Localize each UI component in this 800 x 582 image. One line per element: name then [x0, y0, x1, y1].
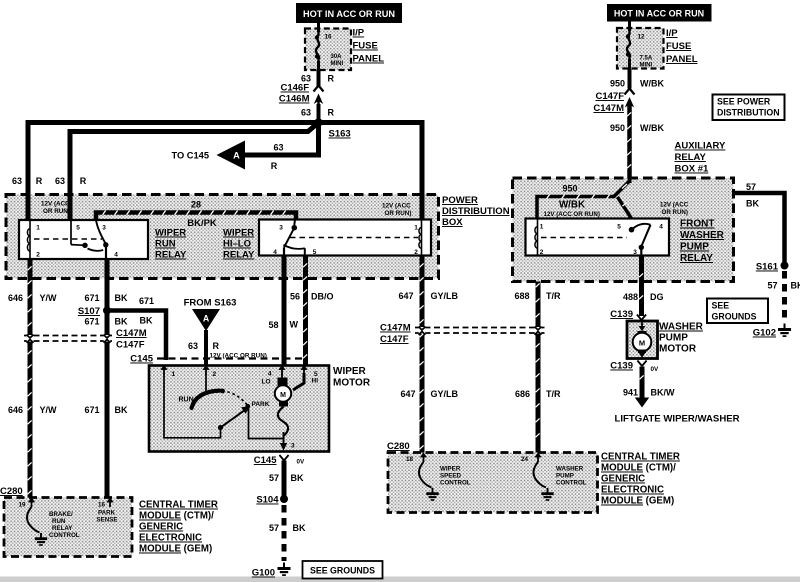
svg-text:OR RUN): OR RUN)	[385, 210, 412, 217]
svg-text:BK: BK	[293, 523, 306, 533]
svg-text:63: 63	[188, 341, 198, 351]
svg-text:2: 2	[36, 252, 40, 259]
svg-text:FUSE: FUSE	[666, 41, 691, 52]
svg-text:DISTRIBUTION: DISTRIBUTION	[442, 206, 510, 217]
svg-text:3: 3	[633, 249, 637, 256]
svg-text:CONTROL: CONTROL	[49, 532, 80, 539]
svg-text:C147M: C147M	[380, 323, 411, 334]
svg-text:PANEL: PANEL	[353, 54, 385, 65]
svg-text:BK/PK: BK/PK	[187, 218, 217, 229]
svg-text:4: 4	[273, 249, 277, 256]
svg-text:BK: BK	[140, 316, 153, 326]
svg-text:688: 688	[514, 291, 529, 301]
svg-text:BK: BK	[115, 293, 128, 303]
svg-text:3: 3	[279, 225, 283, 232]
svg-text:Y/W: Y/W	[40, 293, 58, 303]
svg-text:PANEL: PANEL	[666, 54, 698, 65]
svg-text:MODULE (GEM): MODULE (GEM)	[139, 544, 212, 555]
svg-text:SPEED: SPEED	[440, 473, 462, 480]
svg-text:C280: C280	[0, 486, 23, 497]
svg-text:W: W	[290, 320, 299, 330]
svg-text:FROM S163: FROM S163	[184, 298, 237, 309]
svg-text:RELAY: RELAY	[680, 253, 713, 264]
svg-text:63: 63	[55, 176, 65, 186]
svg-text:MODULE (CTM)/: MODULE (CTM)/	[601, 463, 676, 474]
svg-text:0V: 0V	[651, 366, 660, 373]
svg-text:HI: HI	[312, 378, 319, 385]
svg-text:3: 3	[291, 443, 295, 450]
svg-text:12V (ACC OR RUN): 12V (ACC OR RUN)	[210, 353, 267, 360]
svg-text:LO: LO	[261, 379, 270, 386]
svg-text:1: 1	[172, 371, 176, 378]
svg-text:671: 671	[139, 296, 154, 306]
svg-text:GY/LB: GY/LB	[431, 291, 459, 301]
svg-text:4: 4	[659, 224, 663, 231]
svg-text:G100: G100	[252, 568, 275, 579]
svg-text:MOTOR: MOTOR	[659, 344, 697, 355]
svg-text:671: 671	[84, 293, 99, 303]
svg-text:R: R	[213, 341, 220, 351]
svg-text:950: 950	[610, 79, 625, 89]
svg-text:C145: C145	[254, 455, 277, 466]
svg-text:A: A	[233, 151, 240, 161]
svg-text:FRONT: FRONT	[680, 219, 714, 230]
svg-text:R: R	[271, 161, 278, 171]
svg-text:A: A	[203, 314, 210, 324]
svg-text:5: 5	[617, 224, 621, 231]
svg-text:5: 5	[313, 249, 317, 256]
svg-text:T/R: T/R	[546, 291, 561, 301]
svg-text:12V (ACC: 12V (ACC	[41, 201, 70, 208]
svg-text:RELAY: RELAY	[155, 250, 187, 261]
svg-text:MODULE (GEM): MODULE (GEM)	[601, 496, 674, 507]
svg-text:C139: C139	[610, 361, 633, 372]
svg-text:PARK: PARK	[252, 401, 270, 408]
svg-text:SEE POWER: SEE POWER	[717, 97, 771, 107]
svg-text:16: 16	[98, 502, 106, 509]
svg-text:C280: C280	[387, 441, 410, 452]
svg-text:BK: BK	[115, 317, 128, 327]
svg-text:W/BK: W/BK	[640, 123, 664, 133]
svg-text:R: R	[328, 108, 335, 118]
svg-text:S163: S163	[329, 129, 351, 140]
svg-text:BRAKE/: BRAKE/	[49, 511, 73, 518]
svg-text:HOT IN ACC OR RUN: HOT IN ACC OR RUN	[614, 9, 704, 19]
svg-text:C147M: C147M	[593, 103, 624, 114]
svg-text:BK/W: BK/W	[651, 388, 675, 398]
svg-text:RELAY: RELAY	[675, 152, 707, 163]
svg-text:GENERIC: GENERIC	[139, 522, 183, 533]
svg-text:671: 671	[84, 405, 99, 415]
svg-text:647: 647	[400, 389, 415, 399]
svg-text:C146F: C146F	[280, 83, 309, 94]
svg-text:OR RUN): OR RUN)	[43, 208, 70, 215]
svg-text:57: 57	[767, 281, 777, 291]
svg-text:WASHER: WASHER	[556, 466, 584, 473]
svg-text:T/R: T/R	[546, 389, 561, 399]
svg-text:R: R	[80, 176, 87, 186]
svg-text:M: M	[639, 338, 645, 347]
svg-text:18: 18	[406, 456, 414, 463]
svg-text:488: 488	[623, 292, 638, 302]
svg-text:POWER: POWER	[442, 195, 478, 206]
svg-text:3: 3	[102, 225, 106, 232]
svg-text:R: R	[328, 74, 335, 84]
svg-text:WIPER: WIPER	[440, 466, 461, 473]
svg-text:BOX: BOX	[442, 217, 463, 228]
svg-text:TO C145: TO C145	[171, 151, 209, 161]
svg-text:Y/W: Y/W	[40, 405, 58, 415]
svg-text:PUMP: PUMP	[659, 333, 688, 344]
svg-text:MOTOR: MOTOR	[333, 378, 371, 389]
svg-text:RELAY: RELAY	[52, 525, 73, 532]
svg-text:WASHER: WASHER	[659, 322, 704, 333]
svg-text:CENTRAL TIMER: CENTRAL TIMER	[139, 500, 218, 511]
svg-text:ELECTRONIC: ELECTRONIC	[601, 485, 664, 496]
svg-text:DISTRIBUTION: DISTRIBUTION	[717, 108, 780, 118]
svg-text:WIPER: WIPER	[333, 366, 367, 377]
svg-text:M: M	[280, 392, 286, 399]
svg-text:BK: BK	[115, 405, 128, 415]
svg-text:C147F: C147F	[380, 334, 409, 345]
svg-text:671: 671	[84, 317, 99, 327]
svg-text:30A: 30A	[331, 54, 343, 60]
svg-text:BK: BK	[791, 281, 800, 291]
svg-text:RUN: RUN	[52, 518, 66, 525]
svg-text:1: 1	[414, 225, 418, 232]
svg-text:SENSE: SENSE	[97, 517, 118, 524]
svg-text:12V (ACC: 12V (ACC	[660, 202, 689, 209]
svg-text:MODULE (CTM)/: MODULE (CTM)/	[139, 511, 214, 522]
svg-text:W/BK: W/BK	[559, 200, 585, 211]
svg-text:DB/O: DB/O	[311, 292, 334, 302]
svg-text:12V (ACC: 12V (ACC	[382, 203, 411, 210]
svg-text:58: 58	[268, 320, 278, 330]
svg-text:C145: C145	[130, 354, 153, 365]
svg-text:686: 686	[515, 389, 530, 399]
svg-text:19: 19	[18, 502, 26, 509]
svg-text:0V: 0V	[297, 459, 306, 466]
svg-text:MINI: MINI	[331, 61, 344, 67]
svg-text:LIFTGATE WIPER/WASHER: LIFTGATE WIPER/WASHER	[615, 414, 740, 425]
svg-text:BK: BK	[746, 199, 759, 209]
svg-text:63: 63	[12, 176, 22, 186]
svg-text:R: R	[36, 176, 43, 186]
svg-text:57: 57	[269, 523, 279, 533]
svg-text:2: 2	[414, 249, 418, 256]
svg-text:GY/LB: GY/LB	[431, 389, 459, 399]
svg-text:S107: S107	[78, 306, 100, 317]
svg-text:CONTROL: CONTROL	[556, 480, 587, 487]
svg-text:2: 2	[540, 249, 544, 256]
svg-text:646: 646	[8, 405, 23, 415]
svg-text:57: 57	[269, 473, 279, 483]
svg-text:G102: G102	[753, 328, 776, 339]
svg-text:C147F: C147F	[595, 91, 624, 102]
svg-text:7.5A: 7.5A	[640, 56, 653, 62]
svg-text:HOT IN ACC OR RUN: HOT IN ACC OR RUN	[303, 9, 395, 19]
svg-text:GENERIC: GENERIC	[601, 474, 645, 485]
svg-text:GROUNDS: GROUNDS	[712, 312, 757, 322]
svg-text:AUXILIARY: AUXILIARY	[675, 141, 727, 152]
svg-text:MINI: MINI	[640, 63, 653, 69]
svg-text:56: 56	[290, 292, 300, 302]
svg-text:1: 1	[36, 225, 40, 232]
svg-text:950: 950	[610, 123, 625, 133]
svg-text:C139: C139	[610, 309, 633, 320]
svg-text:CONTROL: CONTROL	[440, 480, 471, 487]
svg-text:12: 12	[638, 34, 646, 41]
svg-text:5: 5	[76, 225, 80, 232]
svg-text:RUN: RUN	[155, 239, 176, 250]
svg-text:941: 941	[623, 388, 638, 398]
svg-text:FUSE: FUSE	[353, 41, 378, 52]
svg-text:WASHER: WASHER	[680, 230, 725, 241]
svg-text:4: 4	[268, 371, 272, 378]
svg-text:OR RUN): OR RUN)	[662, 209, 688, 216]
svg-text:C147M: C147M	[116, 328, 147, 339]
svg-text:1: 1	[540, 224, 544, 231]
svg-text:ELECTRONIC: ELECTRONIC	[139, 533, 202, 544]
svg-text:DG: DG	[650, 292, 664, 302]
svg-text:I/P: I/P	[666, 28, 678, 39]
svg-text:W/BK: W/BK	[640, 79, 664, 89]
svg-text:57: 57	[746, 182, 756, 192]
svg-text:646: 646	[8, 293, 23, 303]
svg-text:HI–LO: HI–LO	[223, 239, 251, 250]
svg-text:BOX #1: BOX #1	[675, 164, 710, 175]
svg-text:12V (ACC OR RUN): 12V (ACC OR RUN)	[544, 211, 600, 218]
svg-text:WIPER: WIPER	[155, 228, 186, 239]
svg-text:2: 2	[213, 371, 217, 378]
svg-text:16: 16	[325, 34, 333, 41]
svg-text:647: 647	[398, 291, 413, 301]
svg-text:C147F: C147F	[116, 340, 145, 351]
svg-text:SEE: SEE	[712, 301, 730, 311]
svg-text:63: 63	[273, 143, 283, 153]
svg-text:SEE GROUNDS: SEE GROUNDS	[310, 566, 375, 576]
svg-text:4: 4	[114, 252, 118, 259]
svg-text:S161: S161	[756, 262, 779, 273]
svg-text:I/P: I/P	[353, 28, 365, 39]
svg-text:PARK: PARK	[98, 510, 116, 517]
svg-text:24: 24	[521, 456, 529, 463]
svg-text:PUMP: PUMP	[556, 473, 574, 480]
svg-text:28: 28	[191, 200, 201, 210]
svg-text:RELAY: RELAY	[223, 250, 255, 261]
svg-text:BK: BK	[291, 473, 304, 483]
svg-text:PUMP: PUMP	[680, 242, 709, 253]
svg-text:WIPER: WIPER	[223, 228, 254, 239]
svg-text:63: 63	[301, 108, 311, 118]
svg-text:S104: S104	[256, 495, 279, 506]
svg-text:C146M: C146M	[279, 94, 310, 105]
svg-text:950: 950	[562, 184, 577, 194]
svg-text:CENTRAL TIMER: CENTRAL TIMER	[601, 452, 680, 463]
